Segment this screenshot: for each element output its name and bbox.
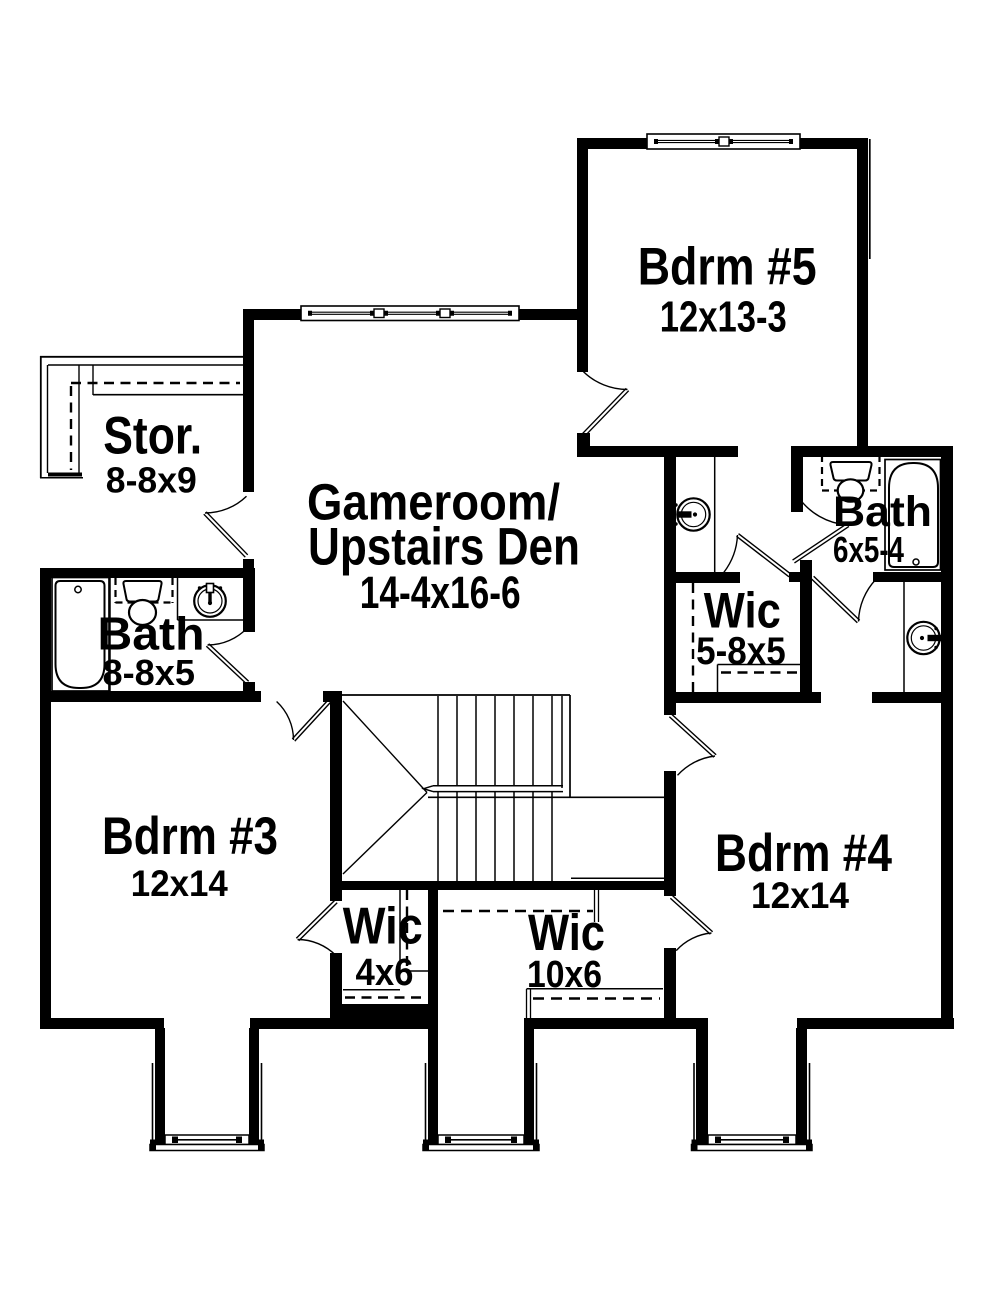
svg-text:12x14: 12x14 (751, 875, 849, 916)
svg-text:Stor.: Stor. (103, 407, 202, 466)
svg-text:8-8x5: 8-8x5 (103, 652, 196, 693)
svg-text:12x14: 12x14 (131, 863, 228, 904)
svg-text:Wic: Wic (343, 898, 423, 956)
svg-text:Bdrm #5: Bdrm #5 (638, 238, 817, 297)
svg-text:5-8x5: 5-8x5 (696, 630, 786, 673)
svg-text:6x5-4: 6x5-4 (833, 529, 904, 570)
svg-text:14-4x16-6: 14-4x16-6 (360, 567, 521, 618)
svg-text:10x6: 10x6 (527, 954, 602, 996)
svg-text:Wic: Wic (528, 904, 605, 961)
svg-text:8-8x9: 8-8x9 (106, 460, 197, 501)
svg-text:12x13-3: 12x13-3 (660, 293, 787, 341)
svg-text:Bdrm #3: Bdrm #3 (102, 807, 278, 866)
svg-text:4x6: 4x6 (356, 952, 414, 994)
